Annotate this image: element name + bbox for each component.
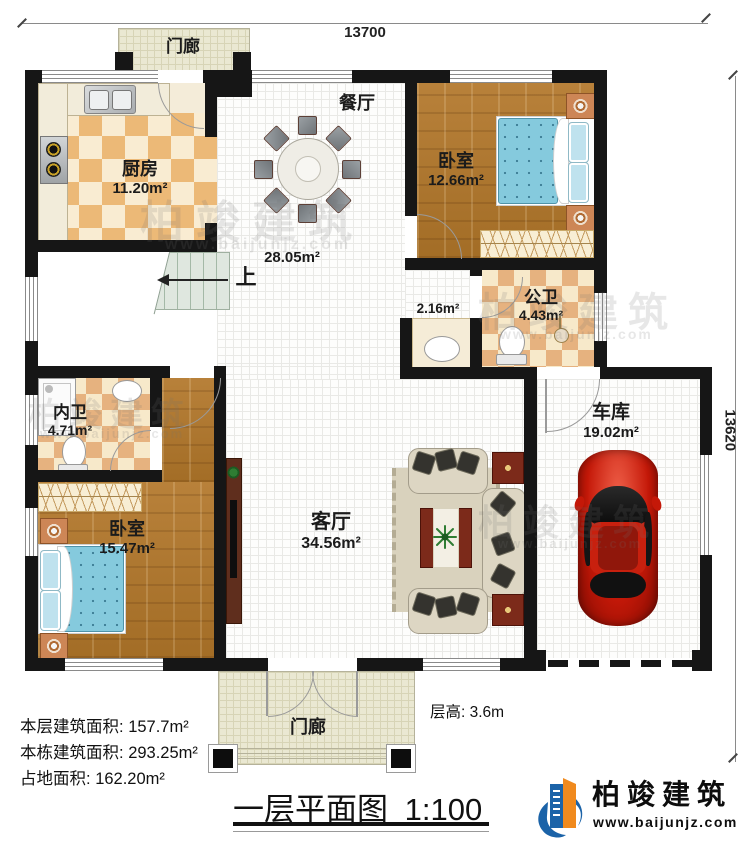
garage-area: 19.02m² (561, 425, 661, 442)
wardrobe (480, 230, 594, 258)
watermark-url: www.baijunjz.com (500, 326, 653, 342)
bed-pillow (569, 123, 588, 162)
garage-label: 车库 (561, 403, 661, 424)
floor-height-label: 层高: (430, 704, 465, 721)
window (25, 277, 38, 341)
public-bath-area: 4.43m² (491, 308, 591, 323)
stat-row: 本层建筑面积: 157.7m² (20, 714, 198, 740)
stat-label: 本层建筑面积: (20, 718, 124, 736)
wall-segment (25, 366, 170, 378)
public-bath-label: 公卫 (491, 289, 591, 308)
stove (40, 136, 68, 184)
door-opening (170, 366, 214, 378)
wall-segment (214, 366, 226, 668)
window (42, 70, 158, 83)
master-bath-area: 4.71m² (20, 423, 120, 438)
dimension-tick (728, 70, 738, 80)
toilet-tank (496, 354, 527, 365)
door-opening (268, 658, 357, 671)
bed-pillow (41, 551, 60, 590)
door-opening (158, 70, 203, 83)
window (423, 658, 500, 671)
bedroom-top-label: 卧室 (406, 152, 506, 172)
dimension-tick (701, 13, 711, 23)
wall-segment (524, 650, 546, 671)
dining-chair (254, 160, 273, 179)
master-bath-label: 内卫 (20, 404, 120, 423)
wall-segment (205, 70, 217, 137)
floor-height: 层高: 3.6m (430, 700, 504, 722)
bedroom-top-area: 12.66m² (406, 173, 506, 190)
stat-value: 162.20m² (95, 770, 165, 788)
porch-column (386, 744, 416, 773)
window (252, 70, 352, 83)
brand-logo-icon (534, 776, 586, 838)
kitchen-area: 11.20m² (90, 181, 190, 198)
corridor-area: 2.16m² (398, 302, 478, 317)
porch-steps (218, 748, 413, 763)
living-area: 34.56m² (281, 535, 381, 553)
stat-label: 占地面积: (20, 770, 91, 788)
stat-row: 占地面积: 162.20m² (20, 766, 198, 792)
window (25, 508, 38, 556)
bedroom-left-label: 卧室 (77, 520, 177, 540)
sofa-cushion (434, 595, 458, 619)
nightstand (566, 205, 595, 231)
plant-icon (227, 466, 240, 479)
floor-height-value: 3.6m (470, 704, 504, 721)
window (450, 70, 552, 83)
wall-segment (405, 70, 417, 218)
floor-plan-canvas: 13700 13620 门廊 门廊 上 (0, 0, 750, 845)
watermark-url: www.baijunjz.com (498, 536, 642, 551)
stat-row: 本栋建筑面积: 293.25m² (20, 740, 198, 766)
dining-label: 餐厅 (307, 94, 407, 114)
brand-name: 柏竣建筑 (592, 780, 732, 811)
stat-value: 293.25m² (128, 744, 198, 762)
wall-pier (233, 52, 251, 83)
bed-blanket-fold (553, 118, 569, 204)
title-underline-thin (233, 831, 489, 832)
stairs-arrowhead (157, 274, 169, 286)
wall-segment (692, 650, 712, 671)
tv (230, 500, 237, 578)
hall-area: 28.05m² (242, 250, 342, 267)
double-bed-mattress (498, 118, 558, 204)
washbasin (424, 336, 460, 362)
nightstand (40, 518, 68, 544)
nightstand (566, 93, 595, 119)
wall-segment (400, 367, 537, 379)
kitchen-sink (84, 85, 136, 114)
door-opening (537, 367, 600, 379)
garage-door-dashed (548, 660, 692, 667)
stairs-arrow (168, 279, 228, 281)
nightstand (40, 633, 68, 659)
bed-pillow (41, 591, 60, 630)
side-table (492, 452, 524, 484)
window (65, 658, 163, 671)
side-table (492, 594, 524, 626)
living-label: 客厅 (281, 511, 381, 533)
dimension-tick (728, 753, 738, 763)
hall-living-junction (217, 366, 405, 379)
dining-chair (298, 116, 317, 135)
kitchen-label: 厨房 (90, 160, 190, 180)
bed-pillow (569, 163, 588, 202)
brand-url: www.baijunjz.com (593, 815, 738, 830)
building-stats: 本层建筑面积: 157.7m² 本栋建筑面积: 293.25m² 占地面积: 1… (20, 714, 198, 792)
door-opening (405, 216, 417, 258)
wall-segment (405, 258, 607, 270)
stat-label: 本栋建筑面积: (20, 744, 124, 762)
dimension-top-label: 13700 (320, 25, 410, 42)
stairs-direction-label: 上 (232, 266, 260, 289)
title-underline (233, 822, 489, 826)
bedroom-left-area: 15.47m² (77, 541, 177, 558)
dimension-right-label: 13620 (721, 399, 738, 461)
wall-segment (600, 367, 712, 379)
porch-column (208, 744, 238, 773)
plant-icon (432, 524, 458, 550)
window (700, 455, 712, 555)
porch-top-label: 门廊 (133, 38, 233, 57)
dining-chair (342, 160, 361, 179)
wall-segment (25, 470, 162, 482)
wardrobe (38, 483, 142, 512)
porch-bottom-label: 门廊 (258, 718, 358, 738)
stat-value: 157.7m² (128, 718, 189, 736)
